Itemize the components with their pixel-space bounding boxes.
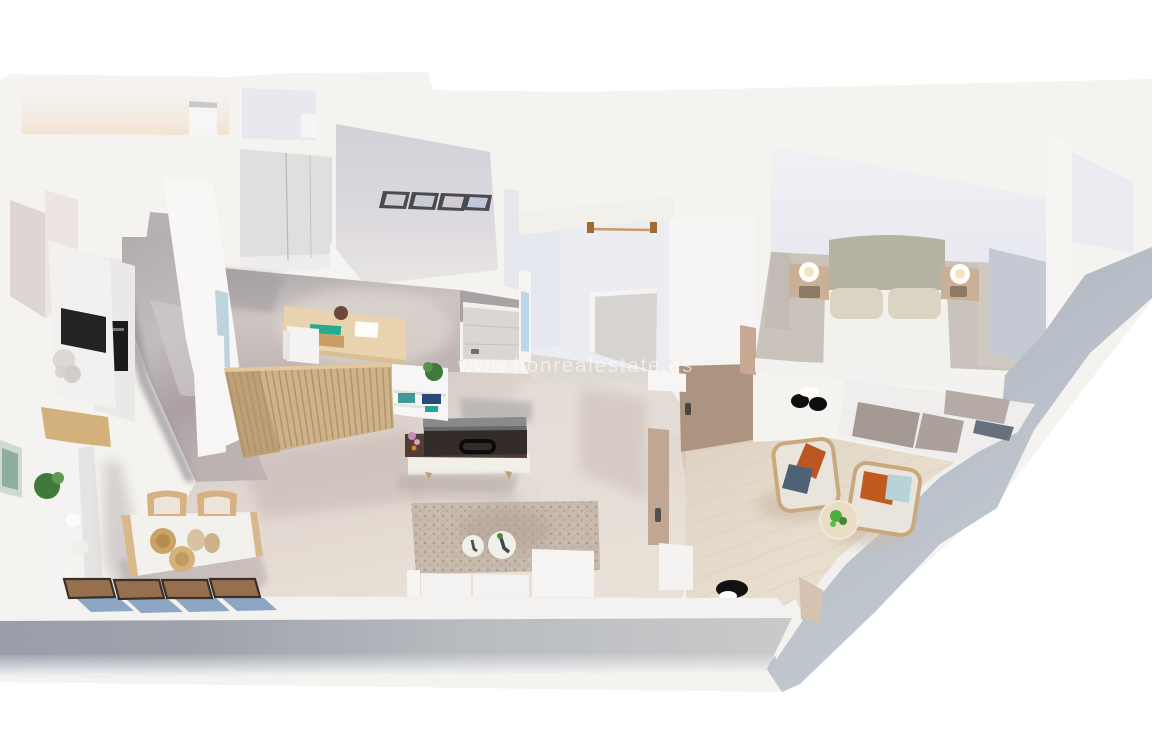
svg-text:www.lionrealestate.es: www.lionrealestate.es (457, 354, 694, 377)
